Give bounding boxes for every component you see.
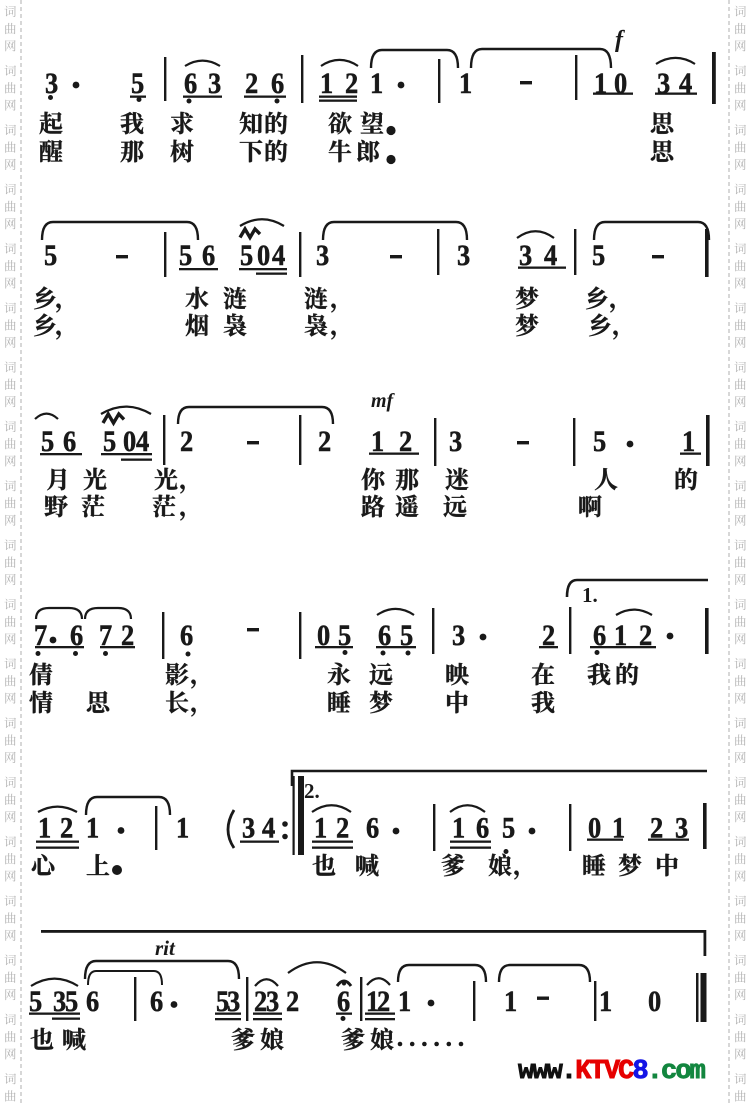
svg-text:5: 5 <box>44 240 57 273</box>
svg-text:2: 2 <box>345 68 358 101</box>
svg-text:www.KTVC8.com: www.KTVC8.com <box>518 1057 706 1087</box>
svg-text:6: 6 <box>184 68 197 101</box>
svg-text:1: 1 <box>38 812 51 845</box>
svg-text:6: 6 <box>476 812 489 845</box>
svg-text:rit: rit <box>155 936 176 960</box>
svg-text:2: 2 <box>336 812 349 845</box>
svg-text:6: 6 <box>366 812 379 845</box>
svg-text:6: 6 <box>180 620 193 653</box>
svg-text:3: 3 <box>208 68 221 101</box>
svg-text:5: 5 <box>592 240 605 273</box>
svg-text:5: 5 <box>179 240 192 273</box>
svg-text:1: 1 <box>176 812 189 845</box>
svg-text:5: 5 <box>502 812 515 845</box>
svg-text:3: 3 <box>242 812 255 845</box>
svg-text:0: 0 <box>257 240 270 273</box>
svg-text:mf: mf <box>371 390 396 412</box>
svg-text:1: 1 <box>320 68 333 101</box>
svg-text:5: 5 <box>240 240 253 273</box>
svg-text:3: 3 <box>657 68 670 101</box>
svg-text:3: 3 <box>316 240 329 273</box>
svg-text:1: 1 <box>314 812 327 845</box>
svg-text:1: 1 <box>504 986 517 1019</box>
svg-text:6: 6 <box>271 68 284 101</box>
svg-text:3: 3 <box>449 426 462 459</box>
svg-text:1: 1 <box>452 812 465 845</box>
svg-text:2: 2 <box>245 68 258 101</box>
svg-text:1: 1 <box>86 812 99 845</box>
svg-text:0: 0 <box>614 68 627 101</box>
svg-text:2: 2 <box>60 812 73 845</box>
svg-text:1: 1 <box>370 68 383 101</box>
svg-text:6: 6 <box>86 986 99 1019</box>
svg-text:1.: 1. <box>582 583 598 607</box>
svg-text:2.: 2. <box>304 779 320 803</box>
svg-text:5: 5 <box>593 426 606 459</box>
svg-text:1: 1 <box>398 986 411 1019</box>
svg-text:2: 2 <box>318 426 331 459</box>
svg-text:6: 6 <box>150 986 163 1019</box>
svg-text:2: 2 <box>286 986 299 1019</box>
svg-text:0: 0 <box>648 986 661 1019</box>
svg-text:3: 3 <box>452 620 465 653</box>
svg-text:3: 3 <box>457 240 470 273</box>
svg-text:1: 1 <box>599 986 612 1019</box>
svg-text:6: 6 <box>202 240 215 273</box>
svg-text:f: f <box>615 27 625 53</box>
svg-text:4: 4 <box>262 812 275 845</box>
svg-text:2: 2 <box>180 426 193 459</box>
svg-text:4: 4 <box>679 68 692 101</box>
svg-text:4: 4 <box>272 240 285 273</box>
svg-text:5: 5 <box>131 68 144 101</box>
svg-text:1: 1 <box>459 68 472 101</box>
svg-text:1: 1 <box>594 68 607 101</box>
